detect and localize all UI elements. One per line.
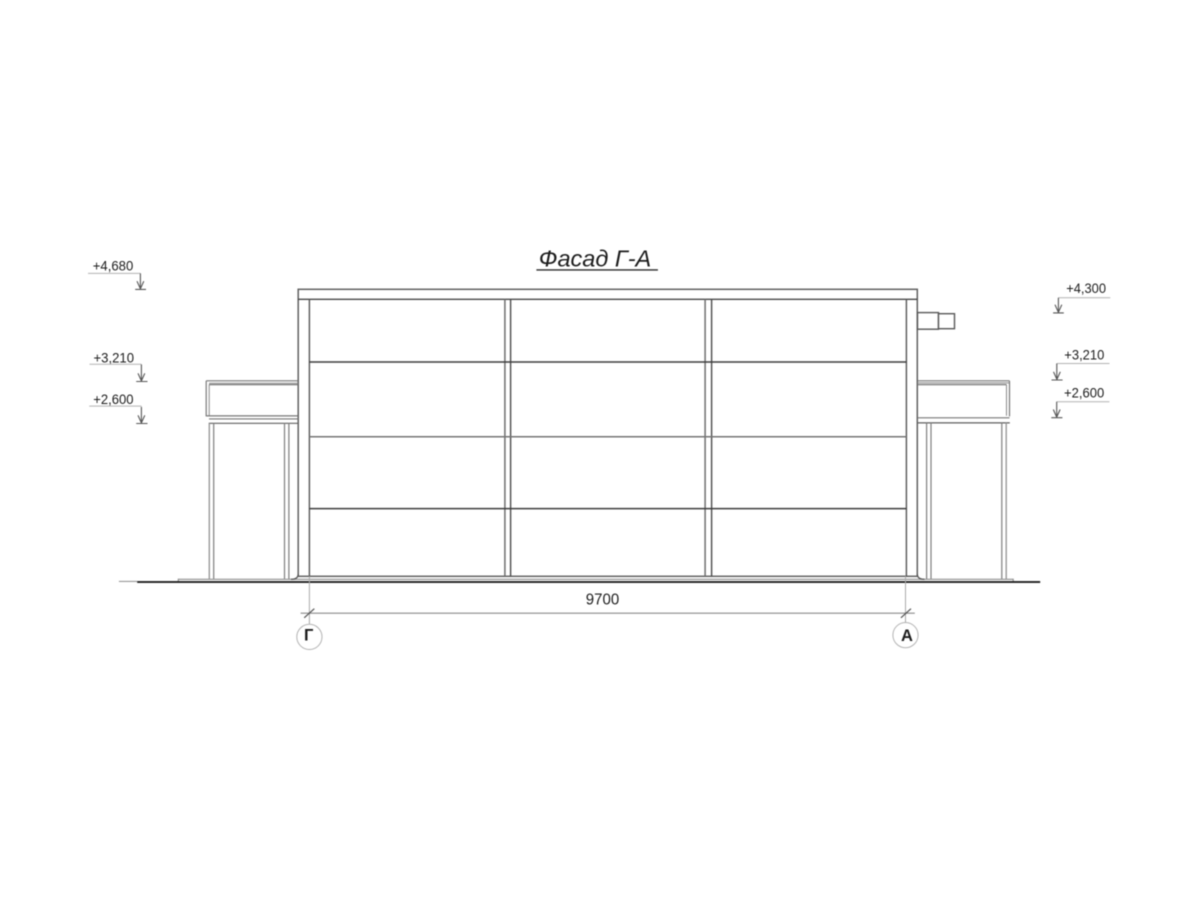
svg-text:Фасад Г-А: Фасад Г-А (539, 245, 652, 271)
svg-text:+2,600: +2,600 (93, 391, 133, 407)
svg-text:+4,300: +4,300 (1066, 280, 1106, 296)
svg-text:+2,600: +2,600 (1064, 384, 1104, 400)
svg-text:А: А (901, 627, 913, 645)
svg-text:Г: Г (304, 627, 314, 645)
svg-text:+3,210: +3,210 (1064, 346, 1104, 362)
svg-text:+4,680: +4,680 (93, 258, 134, 274)
svg-text:9700: 9700 (586, 592, 620, 609)
svg-text:+3,210: +3,210 (94, 349, 135, 365)
